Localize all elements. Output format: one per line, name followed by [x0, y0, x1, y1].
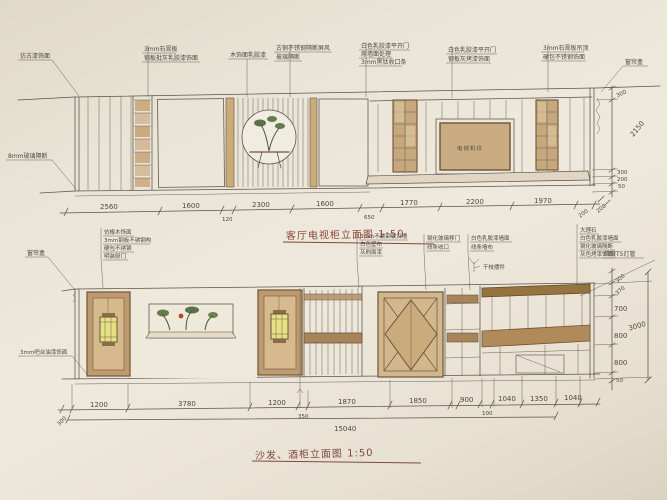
mullion-panel-left [393, 100, 417, 172]
dim-label: 650 [364, 215, 375, 221]
annotation-text: 线条墙布 [471, 243, 494, 251]
annotation-text: 3mm吧台油漆饰面 [20, 348, 68, 356]
sketch-paper: 电视机位 仿古漆饰面 3mm石膏板 钢板批灰乳胶漆饰面 木饰面乳胶漆 古铜不锈钢… [0, 0, 667, 500]
dim-label: 1870 [338, 398, 356, 406]
annotation-text: 3mm石膏板 [144, 45, 178, 53]
dim-label: 50 [616, 378, 623, 384]
annotation-text: 硬包不锈钢 [104, 244, 132, 252]
annotation-text: 大理石 [580, 226, 597, 234]
dim-label: 900 [460, 396, 473, 404]
mullion-panel-right [536, 100, 558, 170]
annotation-text: 白色乳胶漆墙面 [580, 234, 619, 242]
narrow-shelf-column [445, 286, 480, 376]
dim-label: 300 [616, 89, 629, 99]
bottom-elevation-drawing [62, 283, 600, 408]
annotation-text: 3mm不锈钢收口槽 [360, 232, 408, 240]
dim-label: 1850 [409, 397, 427, 405]
dim-label: 1040 [564, 394, 582, 402]
diamond-door [378, 292, 443, 377]
top-elevation-title: 客厅电视柜立面图 1:50 [283, 227, 434, 244]
annotation-text: 仿古漆饰面 [20, 52, 50, 60]
bottom-elevation-title: 沙发、酒柜立面图 1:50 [252, 446, 421, 463]
annotation-text: 3mm黑钛收口条 [361, 58, 407, 66]
annotation-text: 木饰面乳胶漆 [230, 51, 266, 59]
squiggle-mark [596, 98, 600, 134]
annotation-text: 3mm钢板不锈钢构 [104, 236, 152, 244]
annotation-text: 仿橡木饰面 [104, 228, 132, 236]
dim-label: 1040 [498, 395, 516, 403]
annotation-text: 钢化玻璃移门 [427, 234, 460, 242]
annotation-text: 玻璃隔断 [276, 53, 300, 61]
total-dim-label: 15040 [334, 425, 356, 433]
wood-door-left [87, 292, 130, 376]
annotation-text: 钢板批灰乳胶漆饰面 [144, 54, 198, 62]
wall-panel [158, 99, 225, 188]
annotation-text: 硬包不锈钢饰面 [543, 53, 585, 61]
dim-label: 1770 [400, 199, 418, 207]
dim-label: 2150 [629, 120, 647, 139]
dim-label: 200 [617, 177, 628, 183]
t5-light-label: 暗藏T5灯管 [604, 250, 635, 258]
dim-label: 1970 [534, 197, 552, 205]
dim-label: 700 [614, 305, 627, 313]
slatted-shelf-partition [304, 286, 362, 377]
annotation-text: 线条收口 [427, 243, 449, 251]
dim-label: 3000 [628, 320, 647, 332]
curtain-box-label: 窗帘盒 [625, 58, 643, 66]
tv-recess: 电视机位 [436, 119, 514, 174]
dim-label: 800 [614, 359, 627, 367]
branch-decoration-icon [469, 258, 480, 272]
drawing-title: 沙发、酒柜立面图 1:50 [255, 446, 374, 462]
dim-label: 50 [618, 184, 625, 190]
top-annotations: 仿古漆饰面 3mm石膏板 钢板批灰乳胶漆饰面 木饰面乳胶漆 古铜不锈钢隔断屏风 … [18, 42, 648, 98]
dim-label: 1350 [530, 395, 548, 403]
dim-label: 1200 [268, 399, 286, 407]
annotation-text: 古铜不锈钢隔断屏风 [276, 44, 330, 52]
dim-label: 200 [596, 203, 608, 215]
dim-label: 1200 [90, 401, 108, 409]
dim-label: 300 [615, 273, 627, 285]
ladder-shelf [133, 96, 152, 190]
dim-label: 300 [617, 170, 628, 176]
top-elevation-drawing: 电视机位 [18, 86, 660, 196]
dim-label: 2200 [466, 198, 484, 206]
wall-panel [319, 99, 368, 186]
dim-label: 350 [298, 414, 309, 420]
slat-screen [238, 98, 308, 187]
dim-label: 2300 [252, 201, 270, 209]
top-right-vertical-dims: 300 2150 300 200 50 200 [592, 86, 646, 215]
dim-label: 800 [614, 332, 627, 340]
wood-door-right [258, 290, 302, 375]
dim-label: 1600 [182, 202, 200, 210]
top-dimension-line: 2560 1600 120 2300 1600 650 1770 2200 19… [60, 197, 600, 223]
annotation-text: 钢化玻璃隔断 [580, 242, 614, 250]
annotation-text: 白色乳胶漆平开门 [361, 42, 409, 50]
dim-label: 2560 [100, 203, 118, 211]
annotation-text: 白色乳胶漆墙面 [471, 234, 510, 242]
elevation-drawing-canvas: 电视机位 仿古漆饰面 3mm石膏板 钢板批灰乳胶漆饰面 木饰面乳胶漆 古铜不锈钢… [0, 0, 667, 500]
dim-label: 370 [615, 285, 627, 297]
annotation-text: 原墙面处理 [361, 50, 391, 58]
annotation-text: 白色乳胶漆平开门 [448, 46, 496, 54]
annotation-text: 明装厨门 [104, 252, 126, 260]
dim-label: 200 [578, 208, 590, 219]
annotation-text: 白色壁布 [360, 240, 383, 248]
bottom-right-vertical-dims: 300 370 700 800 800 50 3000 [594, 268, 652, 390]
annotation-text: 干枝摆件 [483, 263, 506, 271]
annotation-text: 8mm玻璃隔断 [8, 152, 48, 160]
dim-label: 100 [482, 411, 493, 417]
dim-label: 120 [222, 217, 233, 223]
annotation-text: 3mm石膏板吊顶 [543, 44, 589, 52]
curtain-box-label: 窗帘盒 [27, 249, 45, 257]
dim-label: 3780 [178, 400, 196, 408]
annotation-text: 钢板灰烤漆饰面 [448, 55, 490, 63]
dim-label: 1600 [316, 200, 334, 208]
wine-cabinet-shelves [482, 284, 590, 375]
annotation-text: 灰刷面漆 [360, 248, 383, 256]
